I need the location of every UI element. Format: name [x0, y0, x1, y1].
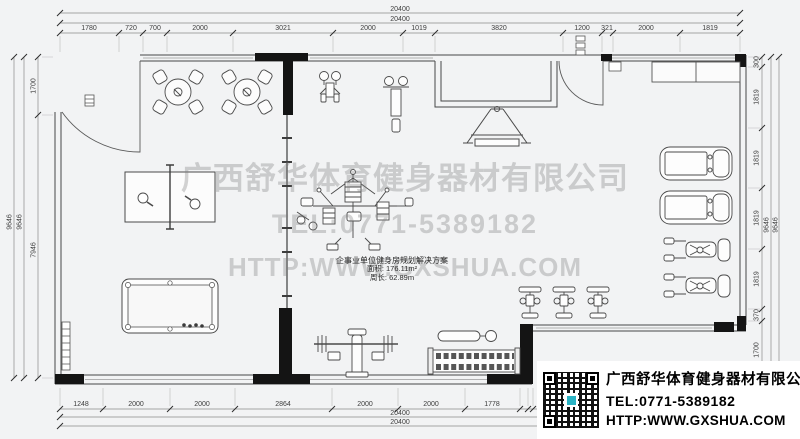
company-info-text: 广西舒华体育健身器材有限公司 TEL:0771-5389182 HTTP:WWW… — [606, 372, 800, 429]
dim-left-0: 1700 — [31, 78, 38, 94]
dim-top-4: 3021 — [275, 25, 291, 32]
dim-right-4: 1819 — [754, 271, 761, 287]
radiator — [62, 322, 70, 370]
pool-table — [122, 279, 218, 333]
dim-top-5: 2000 — [360, 25, 376, 32]
dim-top-11: 1819 — [702, 25, 718, 32]
glass-partition — [282, 115, 292, 308]
dim-right-5: 370 — [754, 309, 761, 321]
qr-finder-icon — [543, 372, 556, 385]
qr-finder-icon — [586, 372, 599, 385]
dim-right-total-2: 9646 — [773, 217, 780, 233]
dumbbell-rack — [428, 348, 520, 374]
qr-center-logo-icon — [564, 393, 578, 407]
dim-top-9: 321 — [601, 25, 613, 32]
cable-machine-2 — [383, 77, 409, 133]
table-tennis-table — [125, 165, 215, 229]
reception-counter — [652, 62, 740, 82]
dim-top-3: 2000 — [192, 25, 208, 32]
dim-bottom-1: 2000 — [128, 401, 144, 408]
dim-bottom-5: 2000 — [423, 401, 439, 408]
dim-bottom-total-2: 20400 — [390, 419, 409, 426]
cable-machine-1 — [320, 72, 341, 103]
spin-bike-2 — [553, 287, 575, 318]
dim-right-3: 1819 — [754, 210, 761, 226]
plan-perimeter: 周长: 62.89m — [336, 274, 448, 283]
dim-top-6: 1019 — [411, 25, 427, 32]
section-symbol — [576, 36, 585, 55]
spin-bike-3 — [587, 287, 609, 318]
dim-top-total-1: 20400 — [390, 6, 409, 13]
company-name: 广西舒华体育健身器材有限公司 — [606, 372, 800, 389]
company-tel: TEL:0771-5389182 — [606, 392, 800, 410]
right-wall — [740, 55, 746, 331]
round-table-set-2 — [221, 69, 273, 115]
dim-left-total-1: 9646 — [7, 214, 14, 230]
entrance-door-left — [62, 61, 140, 152]
qr-code — [543, 372, 599, 428]
dim-right-total-1: 9646 — [764, 217, 771, 233]
lat-pulldown-machine — [463, 107, 531, 147]
dim-bottom-3: 2864 — [275, 401, 291, 408]
dim-top-0: 1780 — [81, 25, 97, 32]
dim-right-6: 1700 — [754, 342, 761, 358]
dim-bottom-2: 2000 — [194, 401, 210, 408]
dim-top-total-2: 20400 — [390, 16, 409, 23]
thermostat-icon — [85, 95, 94, 106]
dim-bottom-6: 1778 — [484, 401, 500, 408]
dim-left-1: 7946 — [31, 242, 38, 258]
entrance-door-right — [559, 61, 603, 105]
dim-top-8: 1200 — [574, 25, 590, 32]
dim-top-7: 3820 — [491, 25, 507, 32]
round-table-set-1 — [152, 69, 204, 115]
exercise-bike-1 — [664, 238, 730, 261]
left-wall — [55, 112, 61, 384]
dim-bottom-0: 1248 — [73, 401, 89, 408]
company-website: HTTP:WWW.GXSHUA.COM — [606, 412, 800, 429]
treadmill-1 — [660, 147, 732, 180]
dim-top-2: 700 — [149, 25, 161, 32]
company-info-block: 广西舒华体育健身器材有限公司 TEL:0771-5389182 HTTP:WWW… — [537, 361, 800, 439]
alcove-wall — [435, 61, 557, 107]
dim-bottom-total-1: 20400 — [390, 410, 409, 417]
dim-right-2: 1819 — [754, 150, 761, 166]
dim-right-1: 1819 — [754, 89, 761, 105]
plan-label: 企事业单位健身房规划解决方案 面积: 176.11m² 周长: 62.89m — [336, 256, 448, 282]
dim-top-1: 720 — [125, 25, 137, 32]
dim-bottom-4: 2000 — [357, 401, 373, 408]
qr-finder-icon — [543, 415, 556, 428]
door-closer-box — [609, 62, 621, 71]
multi-station-machine — [297, 170, 413, 251]
exercise-bike-2 — [664, 274, 730, 297]
bench-press-station — [314, 329, 398, 377]
dim-right-0: 300 — [754, 56, 761, 68]
treadmill-2 — [660, 191, 732, 224]
spin-bike-1 — [519, 287, 541, 318]
floor-plan-page: 20400 20400 1780 720 700 2000 3021 2000 … — [0, 0, 800, 439]
workout-bench — [438, 331, 497, 342]
dim-left-total-2: 9646 — [17, 214, 24, 230]
dim-top-10: 2000 — [638, 25, 654, 32]
